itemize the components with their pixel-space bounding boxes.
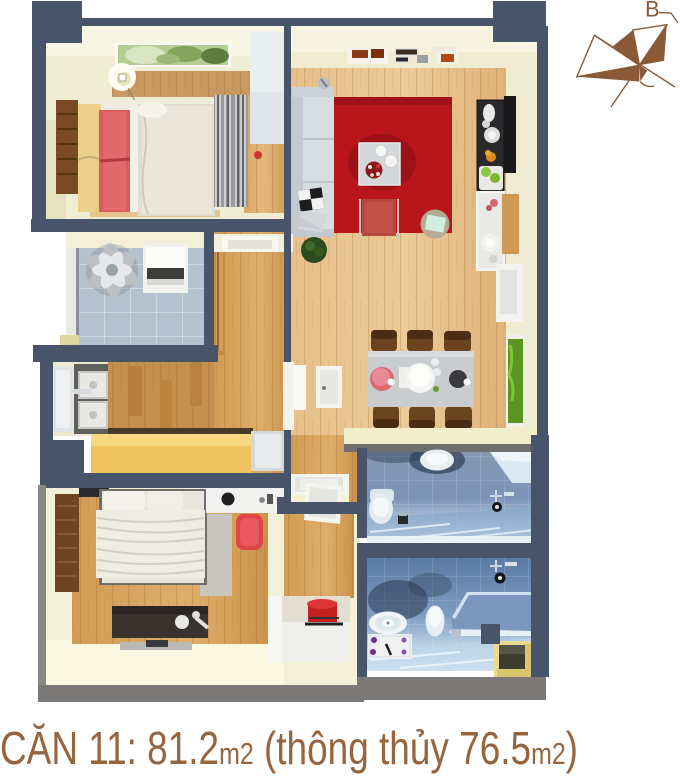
svg-text:CĂN 11: 81.2m2 (thông thủy 76.: CĂN 11: 81.2m2 (thông thủy 76.5m2) — [0, 722, 578, 774]
svg-text:B: B — [645, 0, 660, 22]
